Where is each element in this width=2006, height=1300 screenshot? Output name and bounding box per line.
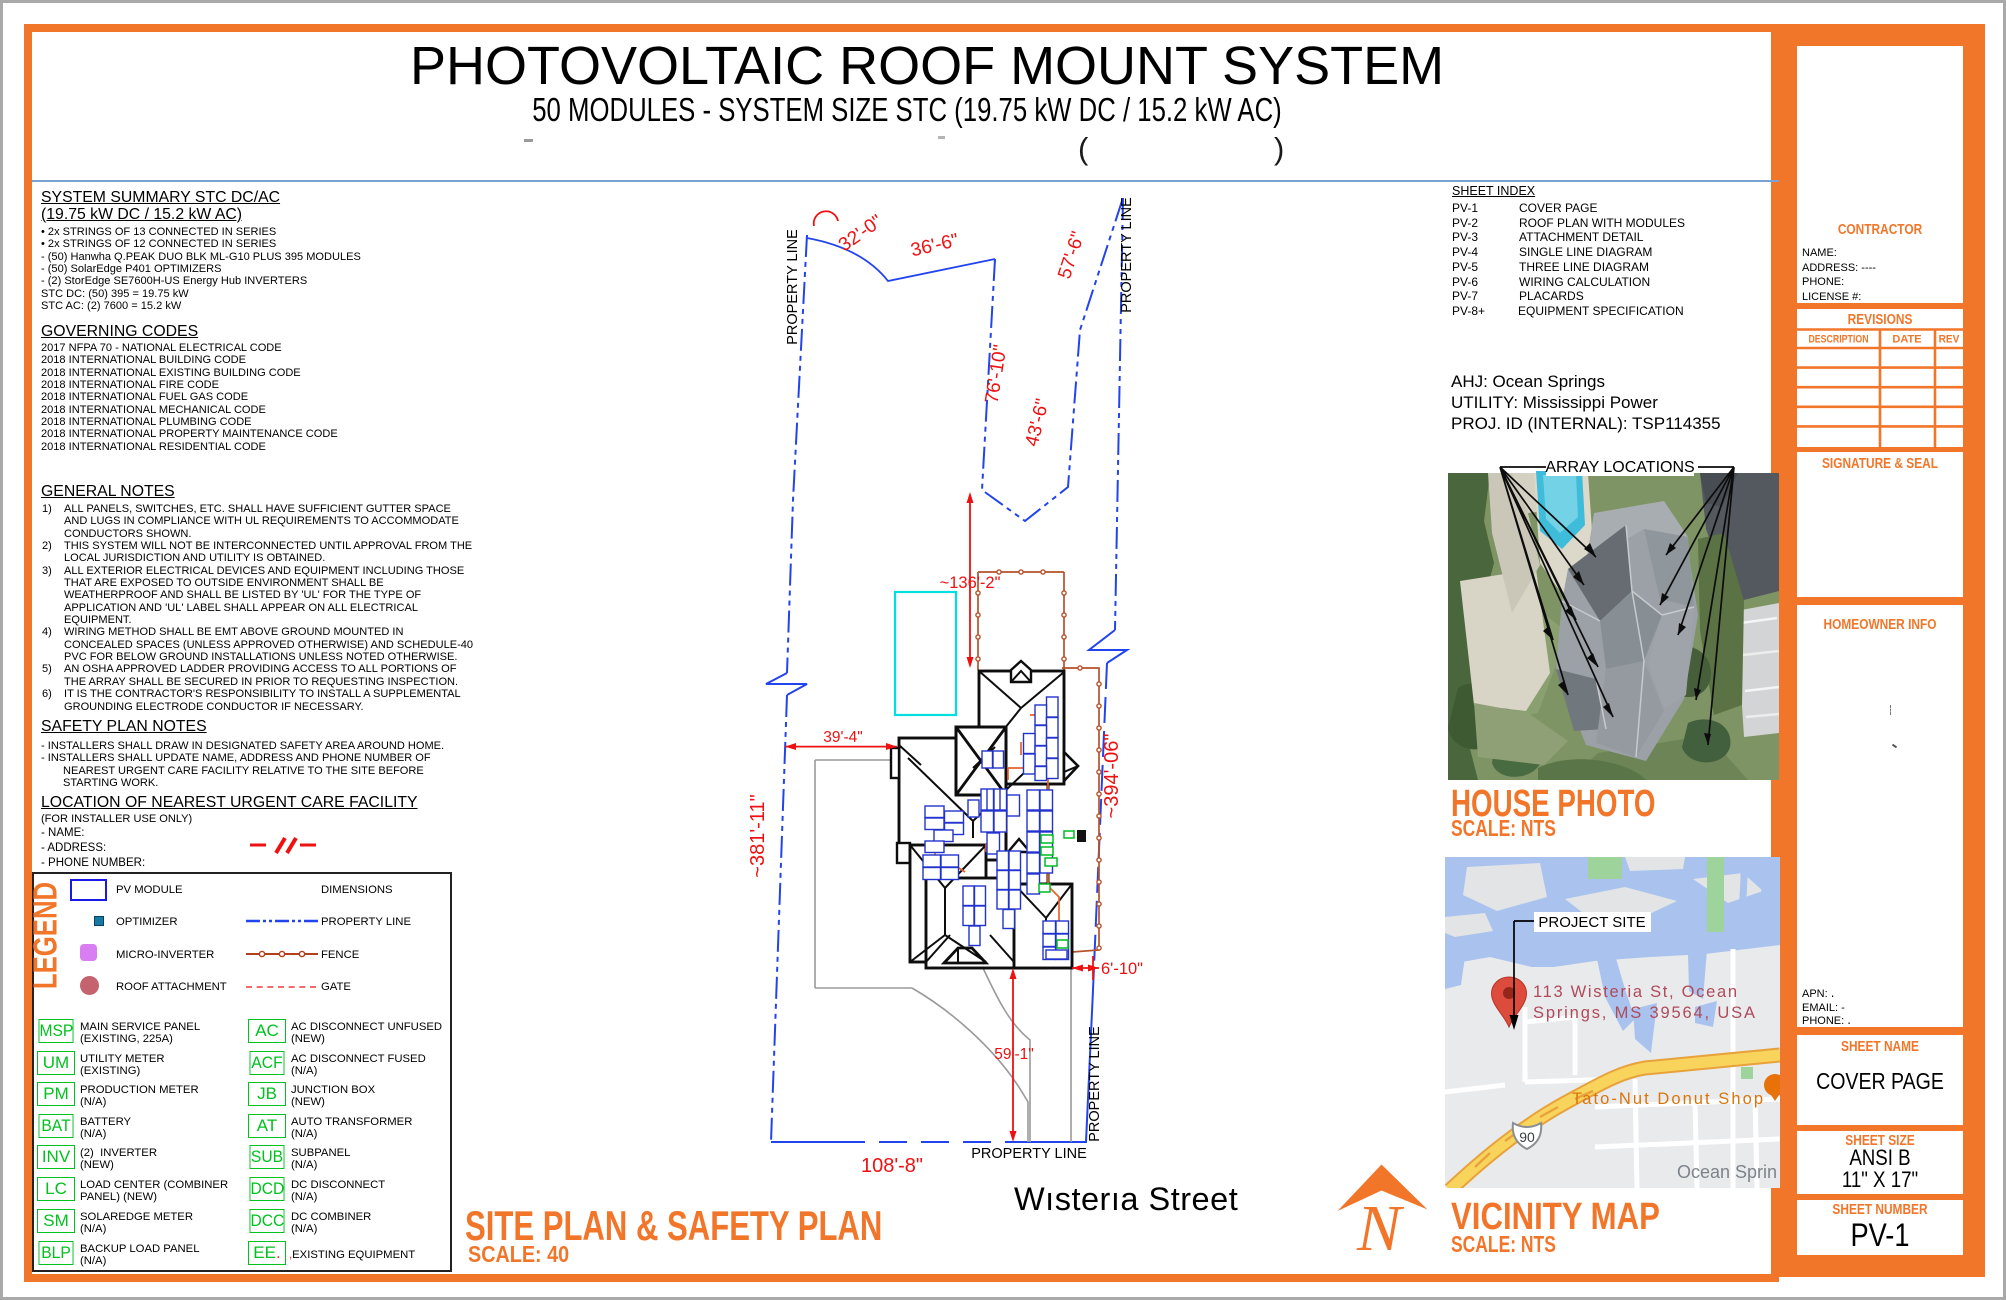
svg-text:36'-6": 36'-6": [909, 230, 961, 261]
svg-text:32'-0": 32'-0": [835, 211, 887, 256]
svg-text:~381'-11": ~381'-11": [747, 794, 769, 877]
svg-text:59'-1": 59'-1": [994, 1046, 1033, 1063]
svg-text:PROPERTY LINE: PROPERTY LINE: [1119, 197, 1135, 313]
svg-text:PROPERTY LINE: PROPERTY LINE: [1087, 1026, 1103, 1142]
svg-text:57'-6": 57'-6": [1054, 229, 1089, 282]
svg-text:6'-10": 6'-10": [1101, 960, 1143, 978]
svg-text:39'-4": 39'-4": [823, 729, 862, 746]
svg-text:76'-10": 76'-10": [982, 343, 1012, 405]
svg-text:108'-8": 108'-8": [861, 1155, 923, 1177]
svg-text:PROPERTY LINE: PROPERTY LINE: [785, 229, 801, 345]
svg-text:43'-6": 43'-6": [1022, 397, 1054, 449]
svg-text:~136'-2": ~136'-2": [940, 574, 1001, 592]
svg-text:PROPERTY LINE: PROPERTY LINE: [971, 1146, 1087, 1162]
svg-text:~394'-06": ~394'-06": [1101, 734, 1123, 819]
